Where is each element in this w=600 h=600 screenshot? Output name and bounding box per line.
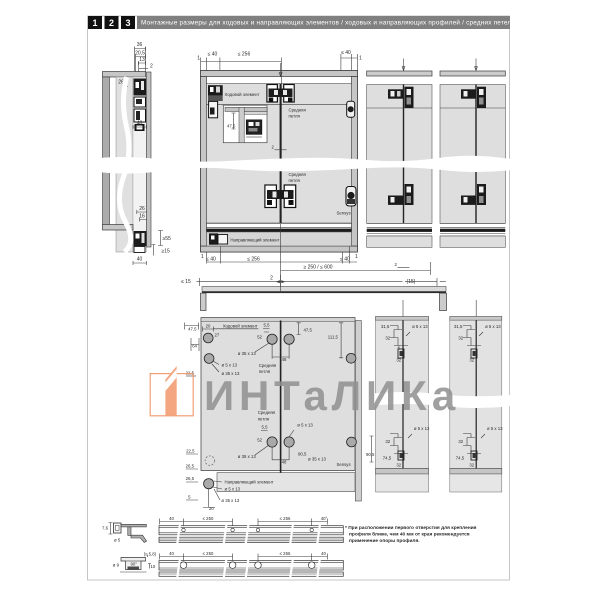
svg-text:Монтажные размеры для ходовых: Монтажные размеры для ходовых и направля… xyxy=(141,19,515,27)
svg-text:48: 48 xyxy=(282,460,287,465)
svg-text:32: 32 xyxy=(458,336,463,341)
svg-text:47,5: 47,5 xyxy=(227,124,236,129)
svg-text:5,5: 5,5 xyxy=(264,323,271,328)
svg-text:профиля ближе, чем 40 мм от кр: профиля ближе, чем 40 мм от края рекомен… xyxy=(349,531,470,538)
svg-text:петля: петля xyxy=(289,178,301,183)
svg-text:≥ 250 / ≤ 600: ≥ 250 / ≤ 600 xyxy=(303,264,332,270)
svg-text:Средняя: Средняя xyxy=(259,363,277,368)
svg-text:≤ 40: ≤ 40 xyxy=(341,50,351,56)
svg-text:32: 32 xyxy=(385,439,390,444)
svg-text:ИНТаЛИКа: ИНТаЛИКа xyxy=(204,372,460,419)
svg-text:32: 32 xyxy=(458,439,463,444)
svg-text:13: 13 xyxy=(139,57,145,63)
svg-text:20: 20 xyxy=(206,324,211,329)
svg-text:ø 35 x 13: ø 35 x 13 xyxy=(238,454,257,459)
svg-text:≤ 40: ≤ 40 xyxy=(206,256,216,262)
svg-text:Направляющий элемент: Направляющий элемент xyxy=(230,238,279,243)
svg-text:20,5: 20,5 xyxy=(135,51,145,57)
svg-text:1: 1 xyxy=(201,254,204,260)
svg-text:≤ 15: ≤ 15 xyxy=(181,279,191,285)
svg-text:74,5: 74,5 xyxy=(383,455,392,460)
svg-text:2: 2 xyxy=(109,18,114,28)
svg-text:10: 10 xyxy=(151,564,156,569)
svg-text:32: 32 xyxy=(396,358,401,363)
svg-text:27: 27 xyxy=(215,333,220,338)
svg-text:40°: 40° xyxy=(321,516,328,521)
svg-text:40: 40 xyxy=(137,257,143,263)
svg-text:петля: петля xyxy=(289,114,301,119)
svg-text:1: 1 xyxy=(355,254,358,260)
svg-text:ø 5 x 13: ø 5 x 13 xyxy=(485,324,501,329)
svg-text:≥55: ≥55 xyxy=(163,236,172,242)
svg-text:ø 5 x 13: ø 5 x 13 xyxy=(412,324,428,329)
svg-text:ø 5 x 13: ø 5 x 13 xyxy=(222,363,238,368)
svg-text:≤ 256: ≤ 256 xyxy=(280,551,291,556)
svg-text:5,5: 5,5 xyxy=(262,425,269,430)
svg-text:40: 40 xyxy=(169,551,174,556)
svg-text:36: 36 xyxy=(137,42,143,48)
svg-text:111,5: 111,5 xyxy=(328,335,339,340)
svg-text:32: 32 xyxy=(396,463,401,468)
svg-text:ø 5 x 13: ø 5 x 13 xyxy=(487,426,503,431)
svg-text:22,5: 22,5 xyxy=(186,449,195,454)
svg-text:≤ 256: ≤ 256 xyxy=(280,516,291,521)
svg-text:ø 5 x 13: ø 5 x 13 xyxy=(225,487,241,492)
svg-text:52: 52 xyxy=(257,335,262,340)
svg-text:32: 32 xyxy=(469,358,474,363)
svg-text:74,5: 74,5 xyxy=(456,455,465,460)
svg-text:ø 35 x 13: ø 35 x 13 xyxy=(238,351,257,356)
svg-text:Sensys: Sensys xyxy=(337,462,351,467)
svg-text:1: 1 xyxy=(197,56,200,62)
svg-text:≤ 250: ≤ 250 xyxy=(203,551,214,556)
svg-text:26,5: 26,5 xyxy=(186,464,195,469)
svg-text:Ходовой элемент: Ходовой элемент xyxy=(225,92,260,97)
svg-text:≥15: ≥15 xyxy=(162,249,171,255)
svg-text:Средняя: Средняя xyxy=(289,172,307,177)
svg-text:90,5: 90,5 xyxy=(366,452,375,457)
svg-text:1: 1 xyxy=(92,18,97,28)
svg-text:40: 40 xyxy=(321,551,326,556)
svg-text:≤ 256: ≤ 256 xyxy=(238,52,251,58)
svg-text:31,5: 31,5 xyxy=(381,324,390,329)
svg-text:20: 20 xyxy=(209,506,214,511)
svg-text:16: 16 xyxy=(139,214,145,220)
svg-text:Направляющий элемент: Направляющий элемент xyxy=(225,480,274,485)
svg-text:2: 2 xyxy=(150,64,153,70)
svg-text:2: 2 xyxy=(270,276,273,282)
svg-text:47,5: 47,5 xyxy=(188,327,197,332)
svg-text:Ходовой элемент: Ходовой элемент xyxy=(223,324,258,329)
svg-text:48: 48 xyxy=(282,357,287,362)
svg-text:7,6: 7,6 xyxy=(102,526,109,531)
svg-text:47,5: 47,5 xyxy=(304,328,313,333)
svg-text:Sensys: Sensys xyxy=(337,211,351,216)
svg-text:ø 9: ø 9 xyxy=(113,563,120,568)
svg-text:ø 5 x 13: ø 5 x 13 xyxy=(414,426,430,431)
svg-text:ø 35 x 13: ø 35 x 13 xyxy=(221,498,240,503)
svg-text:32: 32 xyxy=(385,336,390,341)
svg-text:40: 40 xyxy=(169,516,174,521)
svg-text:ø 35 x 13: ø 35 x 13 xyxy=(308,457,327,462)
svg-text:26,5: 26,5 xyxy=(186,476,195,481)
svg-text:ø 5: ø 5 xyxy=(114,538,121,543)
svg-text:90,5: 90,5 xyxy=(298,452,307,457)
svg-text:31,5: 31,5 xyxy=(454,324,463,329)
svg-text:ø 5 x 13: ø 5 x 13 xyxy=(297,423,313,428)
svg-text:3: 3 xyxy=(125,18,130,28)
svg-text:1: 1 xyxy=(359,56,362,62)
svg-text:40: 40 xyxy=(137,121,143,127)
svg-text:26: 26 xyxy=(139,206,145,212)
svg-text:≤ 40: ≤ 40 xyxy=(208,52,218,58)
svg-text:90°: 90° xyxy=(131,562,138,567)
svg-text:32: 32 xyxy=(469,463,474,468)
svg-text:* При расположении первого отв: * При расположении первого отверстия для… xyxy=(345,525,477,531)
svg-text:(≥ 5,8): (≥ 5,8) xyxy=(144,552,157,557)
svg-text:≤ 256: ≤ 256 xyxy=(247,256,260,262)
svg-text:≤ 40: ≤ 40 xyxy=(340,256,350,262)
svg-text:52: 52 xyxy=(257,438,262,443)
svg-text:≤ 250: ≤ 250 xyxy=(203,516,214,521)
svg-text:применение опоры профиля.: применение опоры профиля. xyxy=(349,537,420,544)
svg-text:Средняя: Средняя xyxy=(289,108,307,113)
